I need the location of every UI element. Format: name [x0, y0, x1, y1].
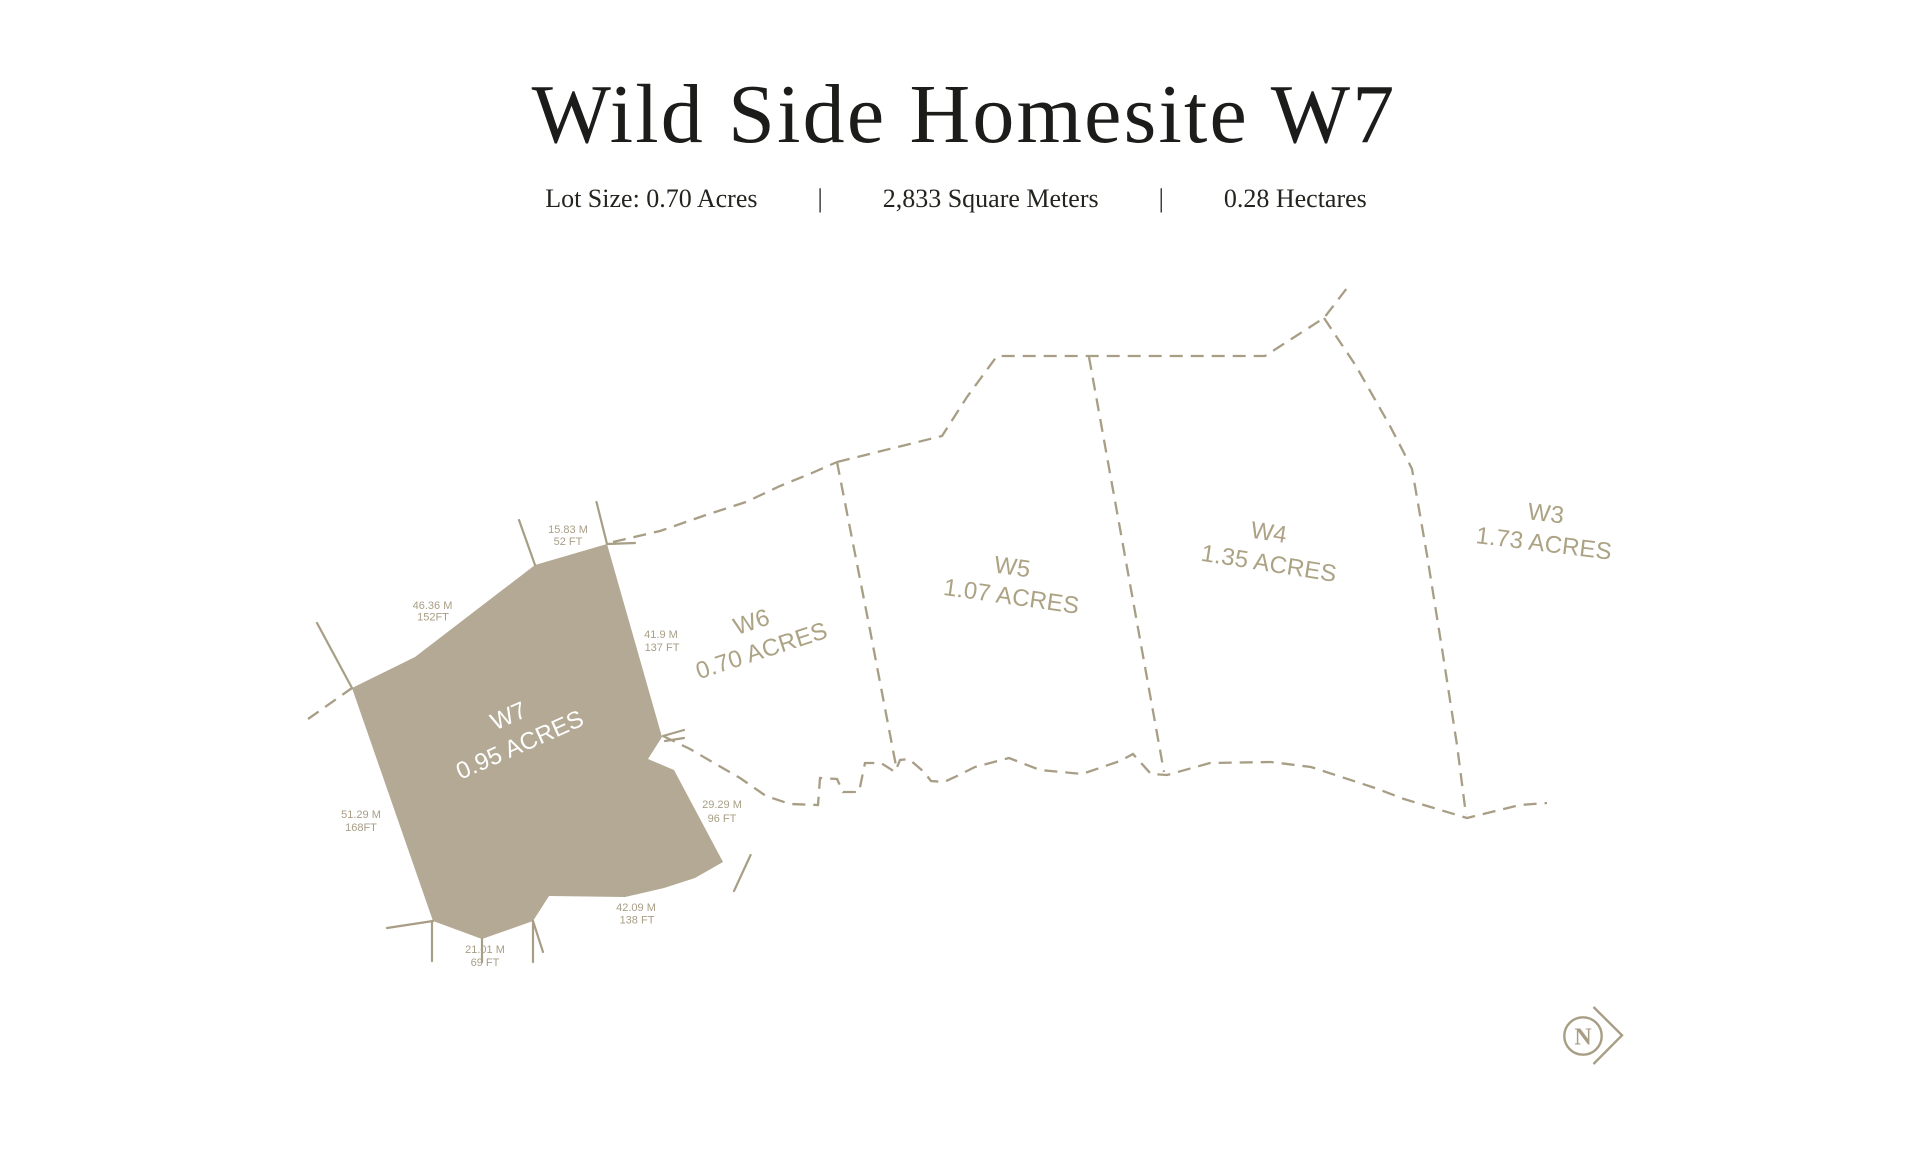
svg-text:168FT: 168FT — [345, 822, 377, 834]
svg-text:41.9 M: 41.9 M — [644, 629, 678, 641]
svg-text:46.36 M: 46.36 M — [413, 600, 453, 612]
svg-text:42.09 M: 42.09 M — [616, 902, 656, 914]
svg-text:15.83 M: 15.83 M — [548, 524, 588, 536]
svg-text:N: N — [1574, 1024, 1592, 1050]
svg-text:W4: W4 — [1249, 517, 1289, 549]
svg-text:W3: W3 — [1526, 498, 1565, 529]
svg-text:137 FT: 137 FT — [645, 642, 680, 654]
svg-text:1.73 ACRES: 1.73 ACRES — [1474, 522, 1613, 565]
svg-text:52 FT: 52 FT — [554, 536, 583, 548]
svg-text:69 FT: 69 FT — [471, 957, 500, 969]
svg-text:96 FT: 96 FT — [708, 813, 737, 825]
svg-text:29.29 M: 29.29 M — [702, 799, 742, 811]
svg-text:51.29 M: 51.29 M — [341, 809, 381, 821]
svg-text:152FT: 152FT — [417, 611, 449, 623]
svg-text:W5: W5 — [992, 551, 1032, 583]
svg-text:21.01 M: 21.01 M — [465, 944, 505, 956]
svg-text:138 FT: 138 FT — [620, 914, 655, 926]
svg-text:1.35 ACRES: 1.35 ACRES — [1199, 540, 1338, 588]
